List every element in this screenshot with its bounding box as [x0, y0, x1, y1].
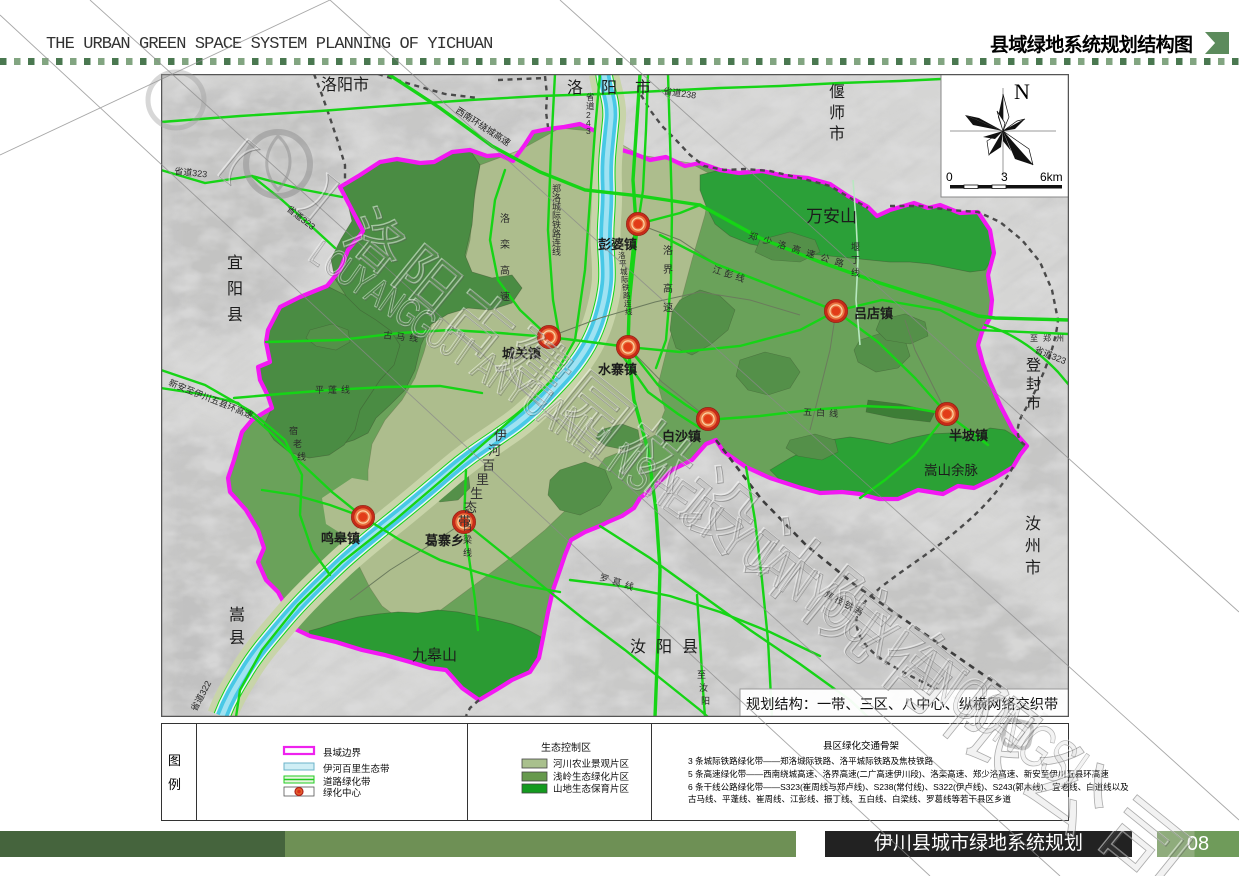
- svg-text:0: 0: [946, 170, 953, 184]
- svg-text:平蓬线: 平蓬线: [315, 384, 354, 395]
- svg-text:河川农业景观片区: 河川农业景观片区: [553, 758, 630, 770]
- svg-text:嵩山余脉: 嵩山余脉: [924, 462, 978, 478]
- svg-text:山地生态保育片区: 山地生态保育片区: [553, 783, 630, 795]
- svg-text:6km: 6km: [1040, 170, 1063, 184]
- svg-text:水寨镇: 水寨镇: [598, 362, 637, 377]
- svg-text:至郑州: 至郑州: [1030, 333, 1069, 343]
- svg-text:城关镇: 城关镇: [502, 346, 541, 361]
- svg-text:万安山: 万安山: [806, 207, 857, 226]
- svg-text:汝阳县: 汝阳县: [630, 638, 708, 656]
- svg-text:彭婆镇: 彭婆镇: [598, 237, 637, 252]
- svg-text:司: 司: [1073, 781, 1206, 876]
- svg-text:县域边界: 县域边界: [323, 747, 362, 759]
- svg-text:白沙镇: 白沙镇: [662, 429, 701, 444]
- svg-text:3: 3: [1001, 170, 1008, 184]
- svg-text:半坡镇: 半坡镇: [949, 428, 988, 443]
- svg-text:五白线: 五白线: [803, 406, 843, 419]
- svg-text:规划结构：一带、三区、八中心、纵横网络交织带: 规划结构：一带、三区、八中心、纵横网络交织带: [746, 696, 1058, 713]
- svg-text:N: N: [1014, 79, 1030, 104]
- svg-text:汝州市: 汝州市: [1025, 515, 1041, 577]
- svg-text:绿化中心: 绿化中心: [323, 787, 362, 799]
- svg-text:偃师市: 偃师市: [829, 83, 845, 143]
- svg-text:道路绿化带: 道路绿化带: [323, 776, 371, 788]
- svg-text:郑洛城际铁路连线: 郑洛城际铁路连线: [552, 183, 561, 257]
- svg-text:洛阳市: 洛阳市: [321, 76, 369, 94]
- svg-text:吕店镇: 吕店镇: [854, 306, 893, 321]
- svg-text:鸣皋镇: 鸣皋镇: [321, 531, 360, 546]
- svg-text:登封市: 登封市: [1026, 357, 1041, 412]
- svg-text:浅岭生态绿化片区: 浅岭生态绿化片区: [553, 771, 630, 783]
- svg-text:洛阳市: 洛阳市: [567, 79, 669, 97]
- svg-text:伊河百里生态带: 伊河百里生态带: [323, 763, 390, 775]
- svg-text:九皋山: 九皋山: [412, 647, 457, 664]
- svg-text:司: 司: [1074, 782, 1207, 876]
- svg-text:宜阳县: 宜阳县: [227, 254, 243, 324]
- svg-text:葛寨乡: 葛寨乡: [424, 533, 464, 548]
- svg-text:生态控制区: 生态控制区: [541, 741, 591, 754]
- svg-text:堰丁线: 堰丁线: [851, 242, 860, 278]
